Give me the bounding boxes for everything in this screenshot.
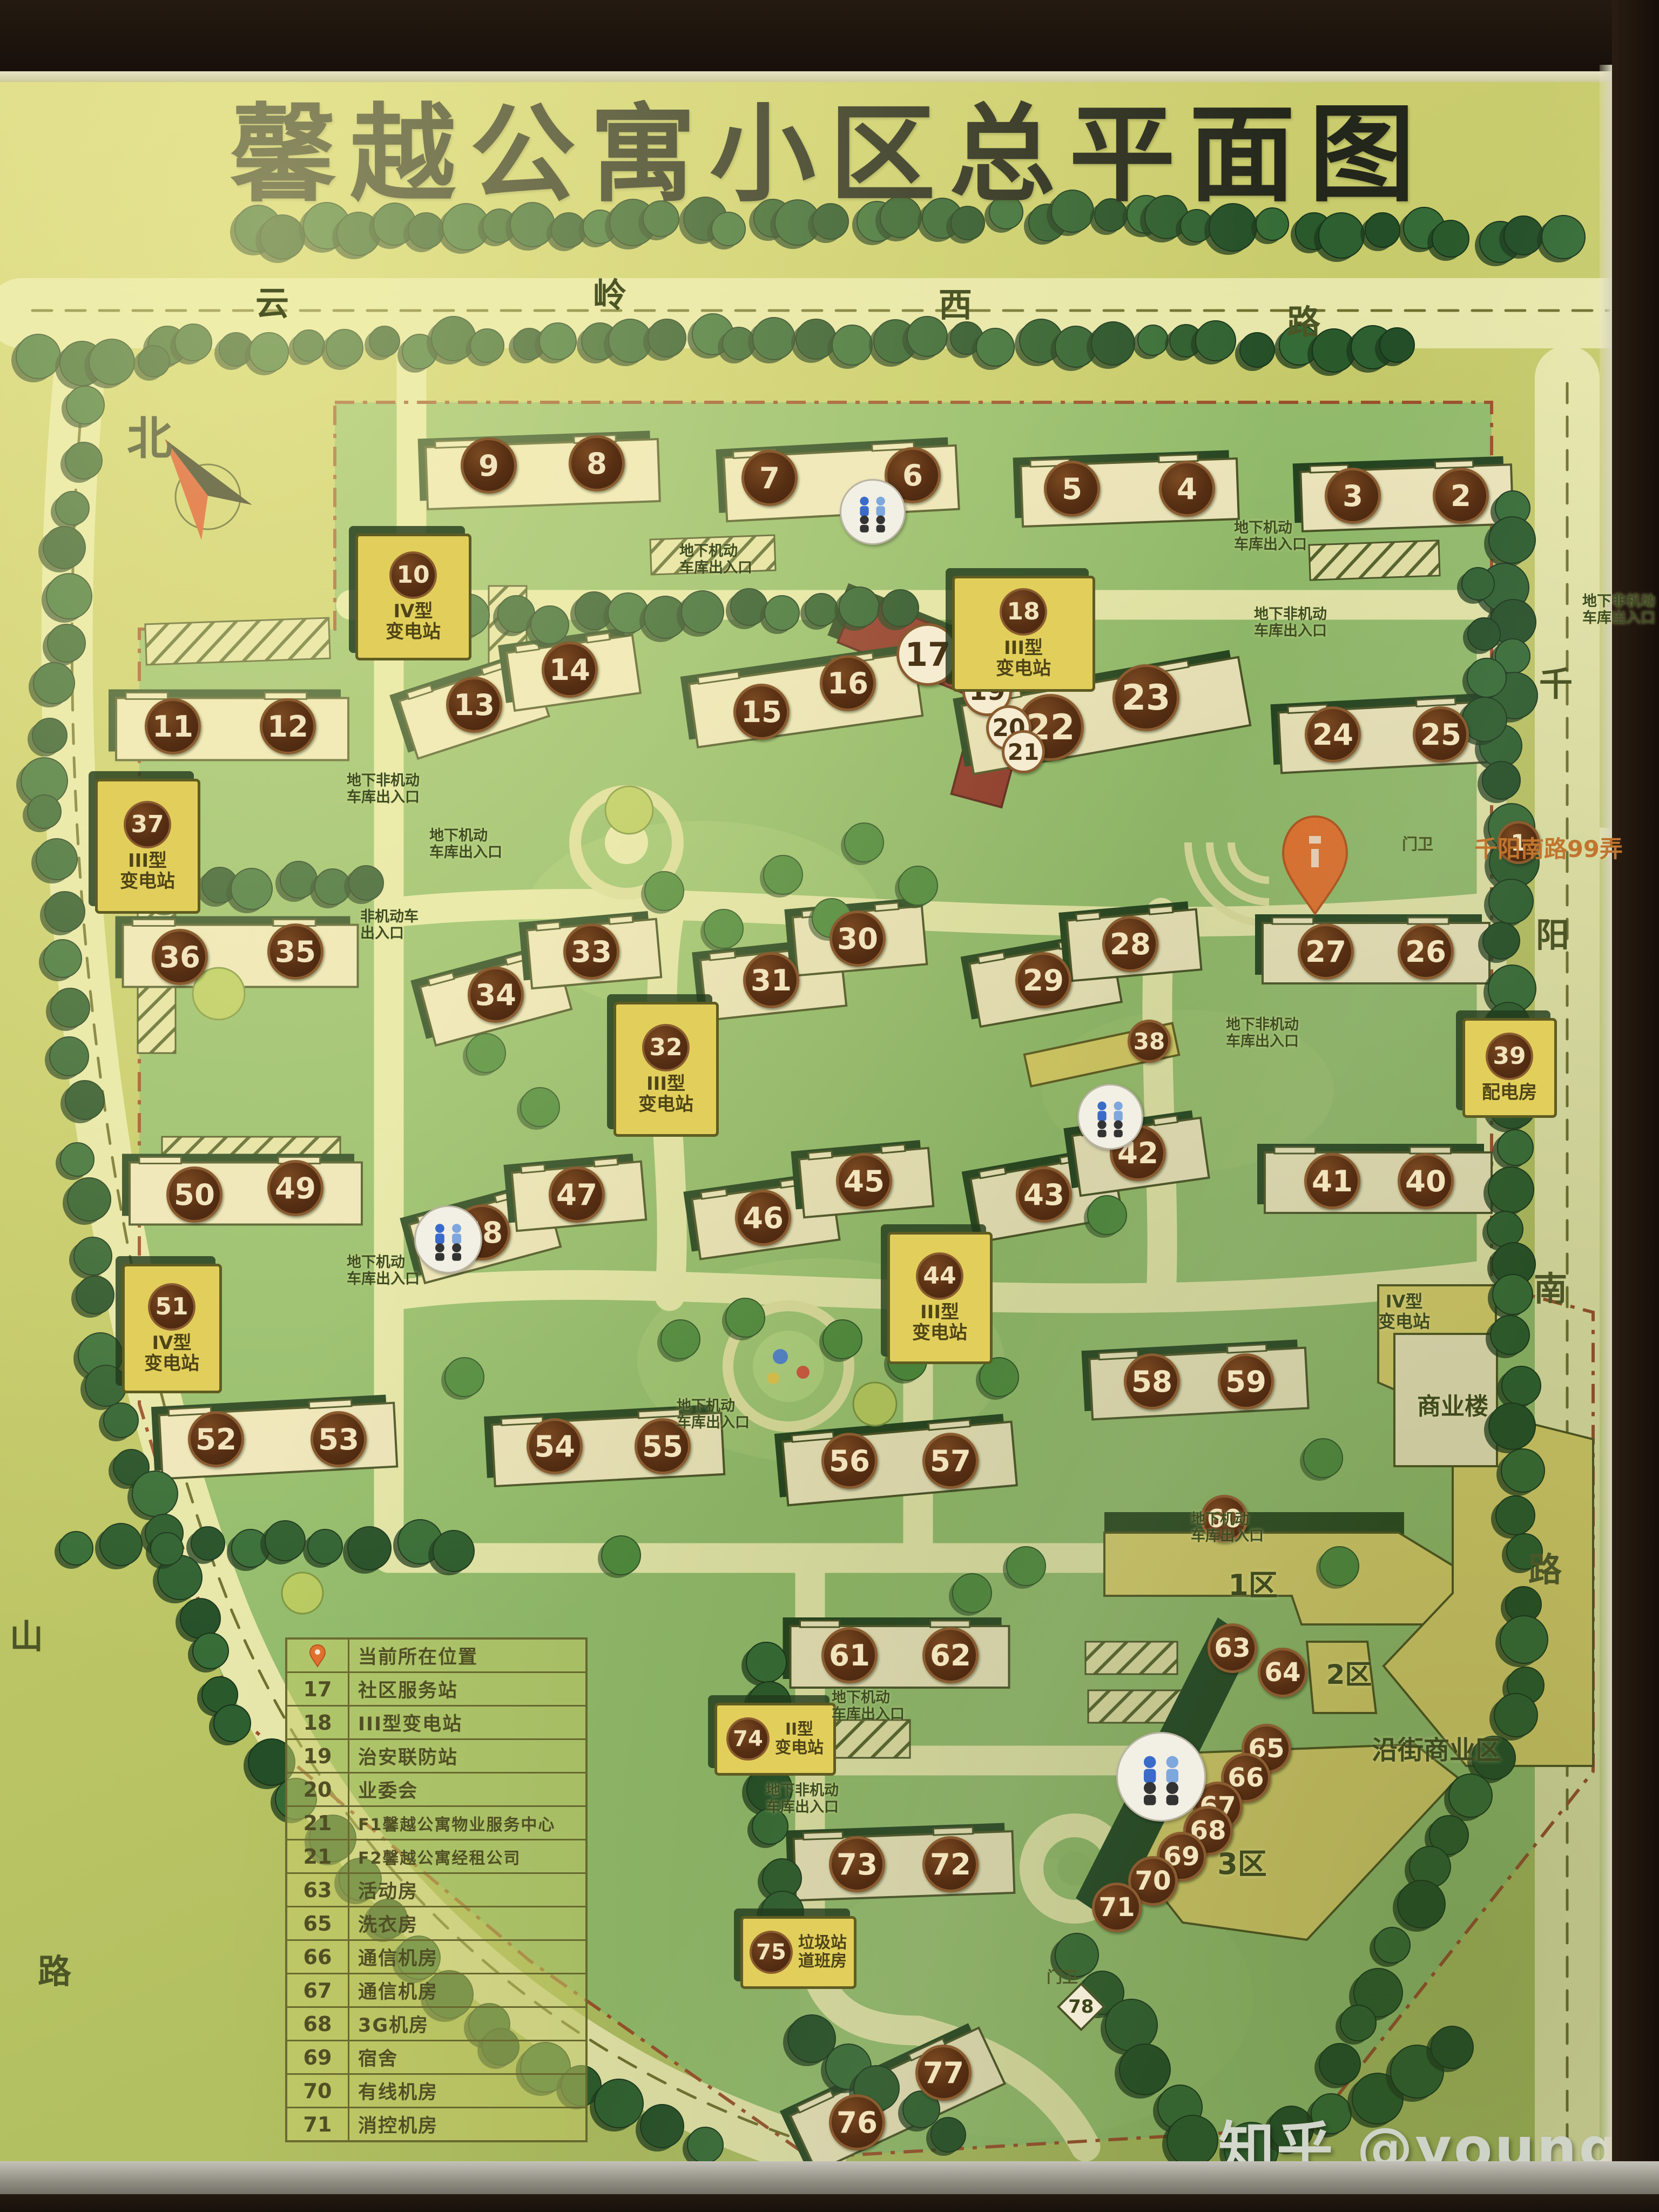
legend-row: 17社区服务站 bbox=[287, 1671, 585, 1705]
building-number-47: 47 bbox=[549, 1166, 605, 1223]
building-number-49: 49 bbox=[267, 1160, 323, 1216]
utility-building-label: 垃圾站 道班房 bbox=[798, 1934, 847, 1970]
people-sticker-icon bbox=[840, 479, 906, 545]
road-name-west-1: 路 bbox=[38, 1944, 71, 1993]
legend-row-number: 66 bbox=[287, 1941, 349, 1973]
legend-row-label: 社区服务站 bbox=[349, 1675, 458, 1703]
utility-building-label: IV型 变电站 bbox=[386, 601, 441, 642]
building-number-33: 33 bbox=[563, 923, 619, 980]
building-number-14: 14 bbox=[542, 642, 598, 698]
utility-building-content: 10IV型 变电站 bbox=[386, 551, 441, 642]
map-legend: 当前所在位置17社区服务站18III型变电站19治安联防站20业委会21F1馨越… bbox=[285, 1637, 588, 2142]
legend-row: 69宿舍 bbox=[287, 2040, 585, 2073]
building-number-74: 74 bbox=[726, 1717, 770, 1761]
building-number-28: 28 bbox=[1102, 916, 1158, 972]
garage-entrance-label: 地下机动 车库出入口 bbox=[1191, 1511, 1264, 1545]
road-name-yunling-west-2: 西 bbox=[939, 278, 972, 326]
road-name-west-0: 山 bbox=[10, 1609, 43, 1658]
building-number-34: 34 bbox=[468, 967, 524, 1023]
building-number-13: 13 bbox=[446, 677, 502, 733]
road-name-yunling-west-3: 路 bbox=[1287, 295, 1320, 343]
utility-building-content: 39配电房 bbox=[1482, 1033, 1537, 1103]
building-number-30: 30 bbox=[829, 911, 886, 967]
utility-building-content: 75垃圾站 道班房 bbox=[750, 1931, 847, 1974]
building-number-57: 57 bbox=[922, 1433, 979, 1489]
utility-building-51: 51IV型 变电站 bbox=[122, 1264, 222, 1393]
compass: 北 bbox=[111, 397, 284, 575]
building-number-17: 17 bbox=[896, 623, 959, 686]
legend-pin-cell bbox=[287, 1640, 349, 1671]
legend-row: 71消控机房 bbox=[287, 2107, 585, 2140]
building-number-76: 76 bbox=[829, 2094, 885, 2150]
garage-entrance-label: 地下机动 车库出入口 bbox=[679, 543, 752, 576]
utility-building-label: III型 变电站 bbox=[638, 1074, 693, 1115]
garage-entrance-label: 地下非机动 车库出入口 bbox=[347, 772, 420, 806]
building-number-29: 29 bbox=[1015, 952, 1071, 1008]
legend-row-number: 69 bbox=[287, 2041, 349, 2073]
legend-row-number: 21 bbox=[287, 1840, 349, 1872]
building-number-35: 35 bbox=[267, 923, 323, 980]
area-label: 3区 bbox=[1166, 1847, 1318, 1881]
building-number-23: 23 bbox=[1112, 664, 1179, 731]
people-sticker-icon bbox=[414, 1205, 482, 1273]
building-number-18: 18 bbox=[1000, 588, 1047, 636]
building-number-21: 21 bbox=[1002, 730, 1045, 773]
legend-row-number: 21 bbox=[287, 1807, 349, 1839]
legend-row-number: 68 bbox=[287, 2008, 349, 2040]
building-number-4: 4 bbox=[1159, 461, 1215, 517]
legend-row: 18III型变电站 bbox=[287, 1705, 585, 1738]
area-label: 沿街商业区 bbox=[1361, 1736, 1512, 1765]
building-number-10: 10 bbox=[389, 551, 437, 599]
building-number-12: 12 bbox=[260, 698, 316, 754]
utility-building-18: 18III型 变电站 bbox=[952, 576, 1095, 692]
utility-building-37: 37III型 变电站 bbox=[95, 779, 200, 914]
building-number-58: 58 bbox=[1124, 1353, 1180, 1410]
legend-row: 63活动房 bbox=[287, 1872, 585, 1906]
legend-row: 19治安联防站 bbox=[287, 1738, 585, 1772]
page-title: 馨越公寓小区总平面图 bbox=[0, 69, 1659, 222]
legend-row-number: 20 bbox=[287, 1773, 349, 1805]
street-number-label: 千阳南路99弄 bbox=[1474, 831, 1623, 864]
building-number-43: 43 bbox=[1016, 1166, 1072, 1223]
utility-building-label: III型 变电站 bbox=[912, 1302, 967, 1343]
legend-row-label: III型变电站 bbox=[349, 1709, 462, 1736]
legend-row-number: 17 bbox=[287, 1673, 349, 1705]
building-number-8: 8 bbox=[569, 435, 625, 491]
legend-row-number: 65 bbox=[287, 1907, 349, 1939]
garage-entrance-label: 地下机动 车库出入口 bbox=[677, 1398, 750, 1431]
utility-building-content: 51IV型 变电站 bbox=[144, 1283, 199, 1374]
building-number-50: 50 bbox=[166, 1166, 222, 1223]
location-pin-icon bbox=[308, 1644, 327, 1668]
building-number-73: 73 bbox=[829, 1836, 885, 1892]
building-number-9: 9 bbox=[461, 437, 517, 494]
building-number-32: 32 bbox=[642, 1024, 690, 1071]
utility-building-39: 39配电房 bbox=[1462, 1018, 1557, 1118]
board-right-edge bbox=[1600, 65, 1612, 2182]
garage-entrance-label: 地下机动 车库出入口 bbox=[1234, 520, 1307, 553]
legend-row-label: 宿舍 bbox=[349, 2044, 398, 2071]
legend-row-label: 活动房 bbox=[349, 1876, 418, 1904]
building-number-25: 25 bbox=[1413, 706, 1469, 763]
people-sticker-icon bbox=[1116, 1732, 1206, 1822]
building-number-41: 41 bbox=[1304, 1153, 1360, 1209]
building-number-44: 44 bbox=[916, 1252, 963, 1300]
area-label: 2区 bbox=[1273, 1660, 1425, 1691]
utility-building-label: III型 变电站 bbox=[120, 851, 175, 892]
garage-entrance-label: 地下机动 车库出入口 bbox=[832, 1689, 905, 1723]
garage-entrance-label: 地下非机动 车库出入口 bbox=[1226, 1016, 1299, 1050]
building-number-72: 72 bbox=[922, 1836, 979, 1892]
legend-row-label: F2馨越公寓经租公司 bbox=[349, 1845, 521, 1869]
building-number-11: 11 bbox=[145, 698, 201, 754]
utility-building-content: 37III型 变电站 bbox=[120, 801, 175, 892]
building-number-15: 15 bbox=[733, 684, 790, 740]
legend-row-number: 67 bbox=[287, 1974, 349, 2006]
garage-entrance-label: 地下非机动 车库出入口 bbox=[766, 1782, 839, 1816]
building-number-16: 16 bbox=[820, 655, 876, 711]
building-number-51: 51 bbox=[148, 1283, 195, 1331]
garage-entrance-label: 地下非机动 车库出入口 bbox=[1254, 606, 1327, 639]
board-top-edge bbox=[0, 71, 1659, 82]
legend-row-number: 71 bbox=[287, 2108, 349, 2140]
legend-row-label: 洗衣房 bbox=[349, 1910, 418, 1937]
legend-row-label: 3G机房 bbox=[349, 2010, 429, 2038]
building-number-77: 77 bbox=[915, 2045, 972, 2101]
legend-row-label: 通信机房 bbox=[349, 1943, 438, 1971]
utility-building-74: 74II型 变电站 bbox=[714, 1703, 836, 1776]
road-name-qianyang-south-0: 千 bbox=[1539, 657, 1573, 705]
legend-row-label: 治安联防站 bbox=[349, 1742, 458, 1770]
garage-entrance-label: 地下机动 车库出入口 bbox=[347, 1254, 420, 1287]
legend-row-label: 业委会 bbox=[349, 1776, 418, 1803]
building-number-24: 24 bbox=[1305, 706, 1361, 763]
photo-frame-top bbox=[0, 0, 1659, 71]
road-name-qianyang-south-1: 阳 bbox=[1536, 908, 1569, 956]
legend-row-number: 19 bbox=[287, 1740, 349, 1772]
north-gatehouse-label: 门卫 bbox=[1402, 832, 1433, 854]
building-number-26: 26 bbox=[1398, 923, 1454, 980]
south-gatehouse-label: 门卫 bbox=[1047, 1965, 1078, 1987]
building-number-31: 31 bbox=[743, 952, 799, 1008]
utility-building-content: 18III型 变电站 bbox=[996, 588, 1051, 679]
legend-header-row: 当前所在位置 bbox=[287, 1640, 585, 1671]
legend-row-label: 通信机房 bbox=[349, 1977, 438, 2004]
building-number-36: 36 bbox=[152, 929, 208, 985]
road-name-yunling-west-0: 云 bbox=[255, 276, 289, 325]
building-number-62: 62 bbox=[922, 1627, 979, 1683]
utility-building-content: 32III型 变电站 bbox=[638, 1024, 693, 1115]
utility-building-44: 44III型 变电站 bbox=[887, 1232, 993, 1364]
utility-building-content: 74II型 变电站 bbox=[726, 1717, 824, 1761]
building-number-59: 59 bbox=[1218, 1353, 1274, 1410]
utility-building-label: IV型 变电站 bbox=[144, 1333, 199, 1374]
road-name-qianyang-south-2: 南 bbox=[1534, 1262, 1567, 1310]
utility-building-content: 44III型 变电站 bbox=[912, 1252, 967, 1343]
photo-frame-bottom bbox=[0, 2194, 1659, 2212]
legend-row: 21F2馨越公寓经租公司 bbox=[287, 1839, 585, 1872]
building-number-61: 61 bbox=[821, 1627, 878, 1683]
building-number-53: 53 bbox=[311, 1411, 367, 1467]
legend-row-number: 18 bbox=[287, 1707, 349, 1738]
area-label: IV型 变电站 bbox=[1328, 1292, 1480, 1332]
building-number-5: 5 bbox=[1044, 461, 1100, 517]
building-number-27: 27 bbox=[1298, 923, 1354, 980]
building-number-2: 2 bbox=[1433, 468, 1489, 524]
building-number-54: 54 bbox=[527, 1418, 583, 1474]
building-number-46: 46 bbox=[735, 1190, 791, 1246]
building-number-78-text: 78 bbox=[1068, 1996, 1094, 2018]
building-number-3: 3 bbox=[1325, 468, 1381, 524]
garage-entrance-label: 非机动车 出入口 bbox=[360, 908, 419, 942]
building-number-40: 40 bbox=[1398, 1153, 1454, 1209]
building-number-38: 38 bbox=[1128, 1020, 1171, 1063]
garage-entrance-label: 地下非机动 车库出入口 bbox=[1582, 593, 1655, 626]
photo-frame-right bbox=[1612, 0, 1659, 2212]
legend-row-label: F1馨越公寓物业服务中心 bbox=[349, 1811, 555, 1835]
utility-building-label: III型 变电站 bbox=[996, 638, 1051, 679]
area-label: 1区 bbox=[1177, 1569, 1328, 1602]
utility-building-label: II型 变电站 bbox=[775, 1721, 824, 1757]
legend-row: 66通信机房 bbox=[287, 1939, 585, 1973]
building-number-37: 37 bbox=[124, 801, 171, 848]
building-number-71: 71 bbox=[1092, 1883, 1142, 1932]
legend-row: 65洗衣房 bbox=[287, 1906, 585, 1939]
legend-row: 70有线机房 bbox=[287, 2073, 585, 2107]
site-plan-board-photo: 馨越公寓小区总平面图 北 当前所在位置17社区服务站18III型变电站19治安联… bbox=[0, 0, 1659, 2212]
legend-row: 67通信机房 bbox=[287, 1973, 585, 2006]
legend-row-label: 有线机房 bbox=[349, 2077, 438, 2105]
building-number-7: 7 bbox=[741, 450, 798, 506]
legend-row-number: 63 bbox=[287, 1874, 349, 1906]
utility-building-label: 配电房 bbox=[1482, 1082, 1537, 1103]
legend-row: 683G机房 bbox=[287, 2006, 585, 2040]
legend-row-label: 消控机房 bbox=[349, 2110, 438, 2138]
road-name-qianyang-south-3: 路 bbox=[1528, 1542, 1562, 1591]
building-number-45: 45 bbox=[836, 1153, 892, 1209]
legend-row-number: 70 bbox=[287, 2075, 349, 2107]
legend-row: 20业委会 bbox=[287, 1772, 585, 1805]
garage-entrance-label: 地下机动 车库出入口 bbox=[429, 827, 502, 861]
utility-building-10: 10IV型 变电站 bbox=[355, 534, 471, 660]
building-number-52: 52 bbox=[188, 1411, 244, 1467]
building-number-56: 56 bbox=[821, 1433, 878, 1489]
building-number-63: 63 bbox=[1208, 1623, 1257, 1673]
north-label: 北 bbox=[127, 402, 172, 468]
building-number-39: 39 bbox=[1486, 1033, 1533, 1080]
board-bottom-sill bbox=[0, 2161, 1659, 2197]
building-number-75: 75 bbox=[750, 1931, 793, 1974]
area-label: 商业楼 bbox=[1377, 1393, 1528, 1421]
utility-building-32: 32III型 变电站 bbox=[613, 1002, 719, 1137]
legend-row: 21F1馨越公寓物业服务中心 bbox=[287, 1805, 585, 1839]
legend-header-label: 当前所在位置 bbox=[349, 1642, 478, 1669]
utility-building-75: 75垃圾站 道班房 bbox=[740, 1916, 857, 1989]
people-sticker-icon bbox=[1077, 1084, 1143, 1150]
site-plan-map bbox=[0, 0, 1659, 2212]
road-name-yunling-west-1: 岭 bbox=[593, 268, 626, 316]
